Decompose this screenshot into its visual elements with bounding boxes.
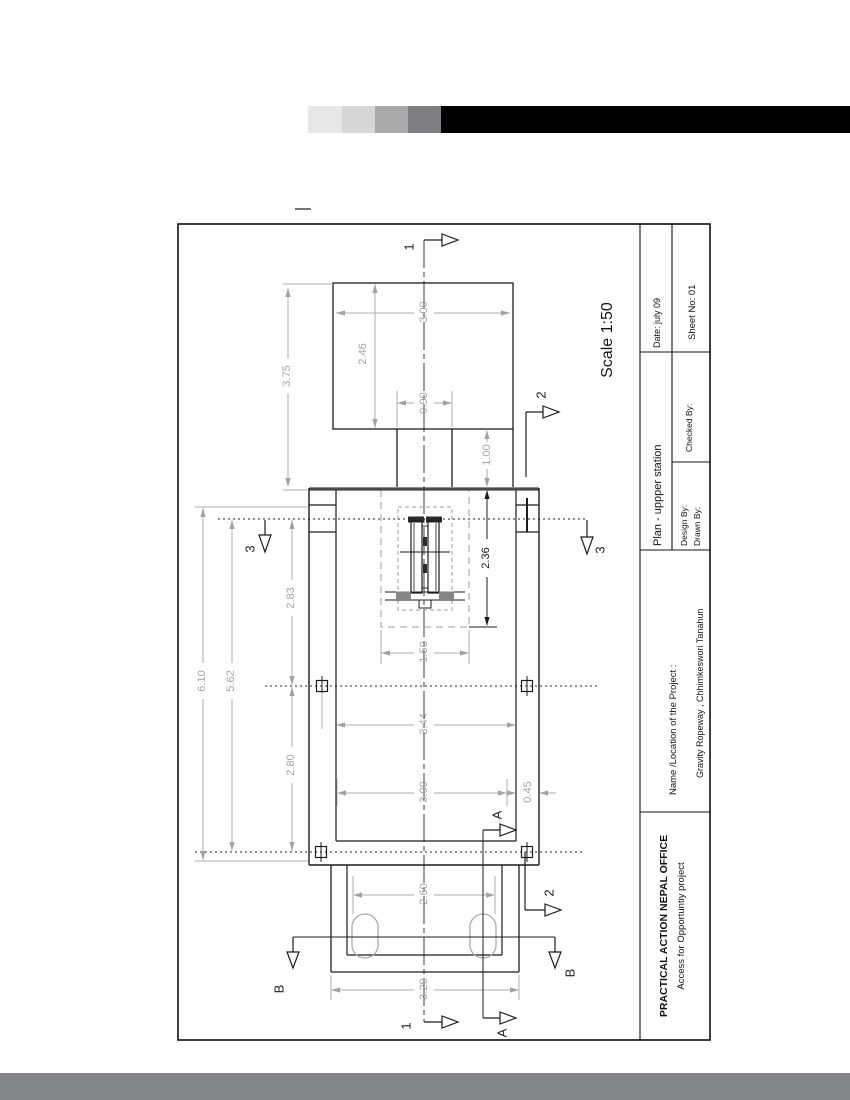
organization-tagline: Access for Opportuntiy project xyxy=(676,862,687,990)
dim-label: 3.00 xyxy=(418,781,430,802)
header-gradient-bar xyxy=(308,106,850,133)
column-oval xyxy=(352,914,378,958)
project-name: Gravity Ropeway , Chhimkeswori Tanahun xyxy=(695,609,705,778)
gradient-swatch xyxy=(408,106,441,133)
sheet-border xyxy=(178,224,710,1040)
dimension-upper-bay: 2.83 xyxy=(285,520,297,685)
dimension-wall-offset: 0.45 xyxy=(499,781,556,802)
header-black-bar xyxy=(441,106,850,133)
dimension-clearance-width: 1.50 xyxy=(381,630,469,664)
checked-by-label: Checked By: xyxy=(684,404,694,452)
dimension-top-block-depth: 2.46 xyxy=(357,284,378,428)
dimension-platform-width: 3.20 xyxy=(331,975,519,1000)
dim-label: 2.46 xyxy=(357,343,369,364)
gradient-swatch xyxy=(375,106,408,133)
dimension-corridor-length: 1.00 xyxy=(481,430,493,487)
dimension-corridor-width: 0.90 xyxy=(397,391,452,427)
project-location-label: Name /Location of the Project : xyxy=(668,665,679,795)
dim-label: 3.44 xyxy=(418,713,430,734)
drawing-title: Plan - uppper station xyxy=(652,444,664,546)
section-marker-3-left: 3 xyxy=(243,520,272,553)
section-label: 2 xyxy=(542,889,557,896)
dimension-overall-length: 6.10 xyxy=(195,507,308,861)
footer-gray-bar xyxy=(0,1073,850,1100)
dim-label: 3.20 xyxy=(418,978,430,999)
gradient-swatch xyxy=(342,106,375,133)
dim-label: 2.60 xyxy=(418,883,430,904)
date-label: Date: july 09 xyxy=(652,298,662,348)
dimension-lower-bay: 2.80 xyxy=(285,687,297,851)
section-marker-2-bottom: 2 xyxy=(525,852,561,916)
cad-sheet-canvas: Date: july 09 Sheet No: 01 Plan - uppper… xyxy=(0,0,850,1100)
clearance-zone-dashed xyxy=(381,489,469,627)
dimension-approach-length: 3.75 xyxy=(281,284,333,490)
dim-label: 3.75 xyxy=(281,365,293,386)
dim-label: 6.10 xyxy=(196,670,208,691)
section-label: 3 xyxy=(243,545,258,552)
dim-label: 0.45 xyxy=(522,781,534,802)
section-label: 1 xyxy=(399,1022,414,1029)
dim-label: 2.36 xyxy=(480,547,492,568)
dim-label: 3.00 xyxy=(418,301,430,322)
section-marker-3-right: 3 xyxy=(581,520,608,554)
section-marker-2-top: 2 xyxy=(526,391,559,477)
organization-name: PRACTICAL ACTION NEPAL OFFICE xyxy=(658,835,670,1017)
section-marker-1-bottom: 1 xyxy=(399,1016,459,1030)
dimension-inner-length: 5.62 xyxy=(225,520,237,851)
section-label: 1 xyxy=(402,243,417,250)
sheave-mechanism-detail xyxy=(385,517,465,609)
dimension-clearance-length: 2.36 xyxy=(469,490,497,627)
scale-label: Scale 1:50 xyxy=(599,302,616,378)
section-label: 2 xyxy=(534,391,549,398)
drawn-by-label: Drawn By: xyxy=(692,507,702,546)
dimension-opening-width: 3.00 xyxy=(337,779,507,806)
dimension-top-block-width: 3.00 xyxy=(336,301,510,322)
section-label: B xyxy=(563,969,578,978)
dim-label: 1.00 xyxy=(481,444,493,465)
section-marker-1-top: 1 xyxy=(402,234,459,251)
drawing-sheet-page: Date: july 09 Sheet No: 01 Plan - uppper… xyxy=(0,0,850,1100)
section-label: B xyxy=(272,985,287,994)
sheet-number-label: Sheet No: 01 xyxy=(687,285,698,340)
section-label: A xyxy=(495,1028,510,1037)
dim-label: 5.62 xyxy=(225,670,237,691)
dim-label: 0.90 xyxy=(418,392,430,413)
section-label: 3 xyxy=(593,546,608,553)
design-by-label: Design By: xyxy=(679,505,689,546)
section-label: A xyxy=(490,810,505,819)
dimension-inner-width: 3.44 xyxy=(336,713,516,734)
gradient-swatch xyxy=(308,106,342,133)
lower-platform xyxy=(331,865,519,972)
dim-label: 2.80 xyxy=(285,754,297,775)
dim-label: 1.50 xyxy=(418,641,430,662)
section-marker-A: A A xyxy=(483,810,516,1037)
dim-label: 2.83 xyxy=(285,587,297,608)
